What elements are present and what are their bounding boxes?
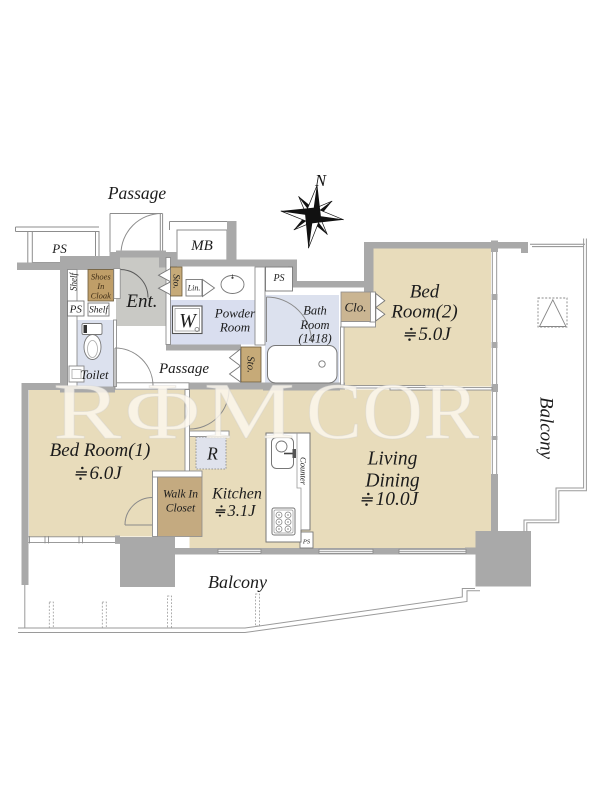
- svg-text:Cloak: Cloak: [91, 291, 112, 301]
- svg-text:10.0J: 10.0J: [376, 489, 420, 510]
- svg-text:Powder: Powder: [214, 306, 256, 321]
- svg-text:Closet: Closet: [166, 503, 196, 515]
- svg-text:Passage: Passage: [107, 183, 167, 203]
- svg-text:W: W: [179, 310, 198, 332]
- svg-text:RΦM: RΦM: [53, 367, 299, 456]
- svg-text:Bed: Bed: [410, 282, 440, 303]
- svg-text:Lin.: Lin.: [187, 284, 201, 293]
- svg-text:(1418): (1418): [298, 332, 331, 346]
- svg-text:Counter: Counter: [298, 457, 308, 486]
- svg-text:3.1J: 3.1J: [227, 501, 257, 520]
- svg-text:Shelf: Shelf: [89, 305, 109, 316]
- svg-text:PS: PS: [69, 304, 83, 316]
- svg-text:Clo.: Clo.: [344, 300, 366, 315]
- svg-text:Shoes: Shoes: [91, 272, 112, 282]
- svg-text:Room(2): Room(2): [390, 302, 457, 323]
- svg-text:PS: PS: [272, 273, 284, 284]
- svg-text:COR: COR: [306, 367, 479, 456]
- svg-text:5.0J: 5.0J: [419, 324, 453, 345]
- svg-text:PS: PS: [302, 539, 311, 546]
- svg-text:6.0J: 6.0J: [90, 463, 124, 484]
- svg-text:PS: PS: [51, 241, 67, 256]
- svg-text:Bath: Bath: [303, 304, 327, 318]
- svg-text:In: In: [96, 281, 104, 291]
- svg-text:Room: Room: [299, 318, 329, 332]
- svg-text:Kitchen: Kitchen: [211, 486, 262, 503]
- svg-text:Ent.: Ent.: [125, 291, 157, 312]
- svg-text:Shelf: Shelf: [69, 272, 79, 291]
- svg-text:Balcony: Balcony: [536, 397, 557, 460]
- svg-text:N: N: [314, 171, 327, 190]
- svg-text:Walk In: Walk In: [163, 489, 198, 501]
- svg-text:Balcony: Balcony: [208, 572, 267, 592]
- svg-text:Room: Room: [219, 320, 250, 335]
- svg-text:MB: MB: [190, 238, 213, 254]
- svg-text:Sto.: Sto.: [170, 274, 180, 289]
